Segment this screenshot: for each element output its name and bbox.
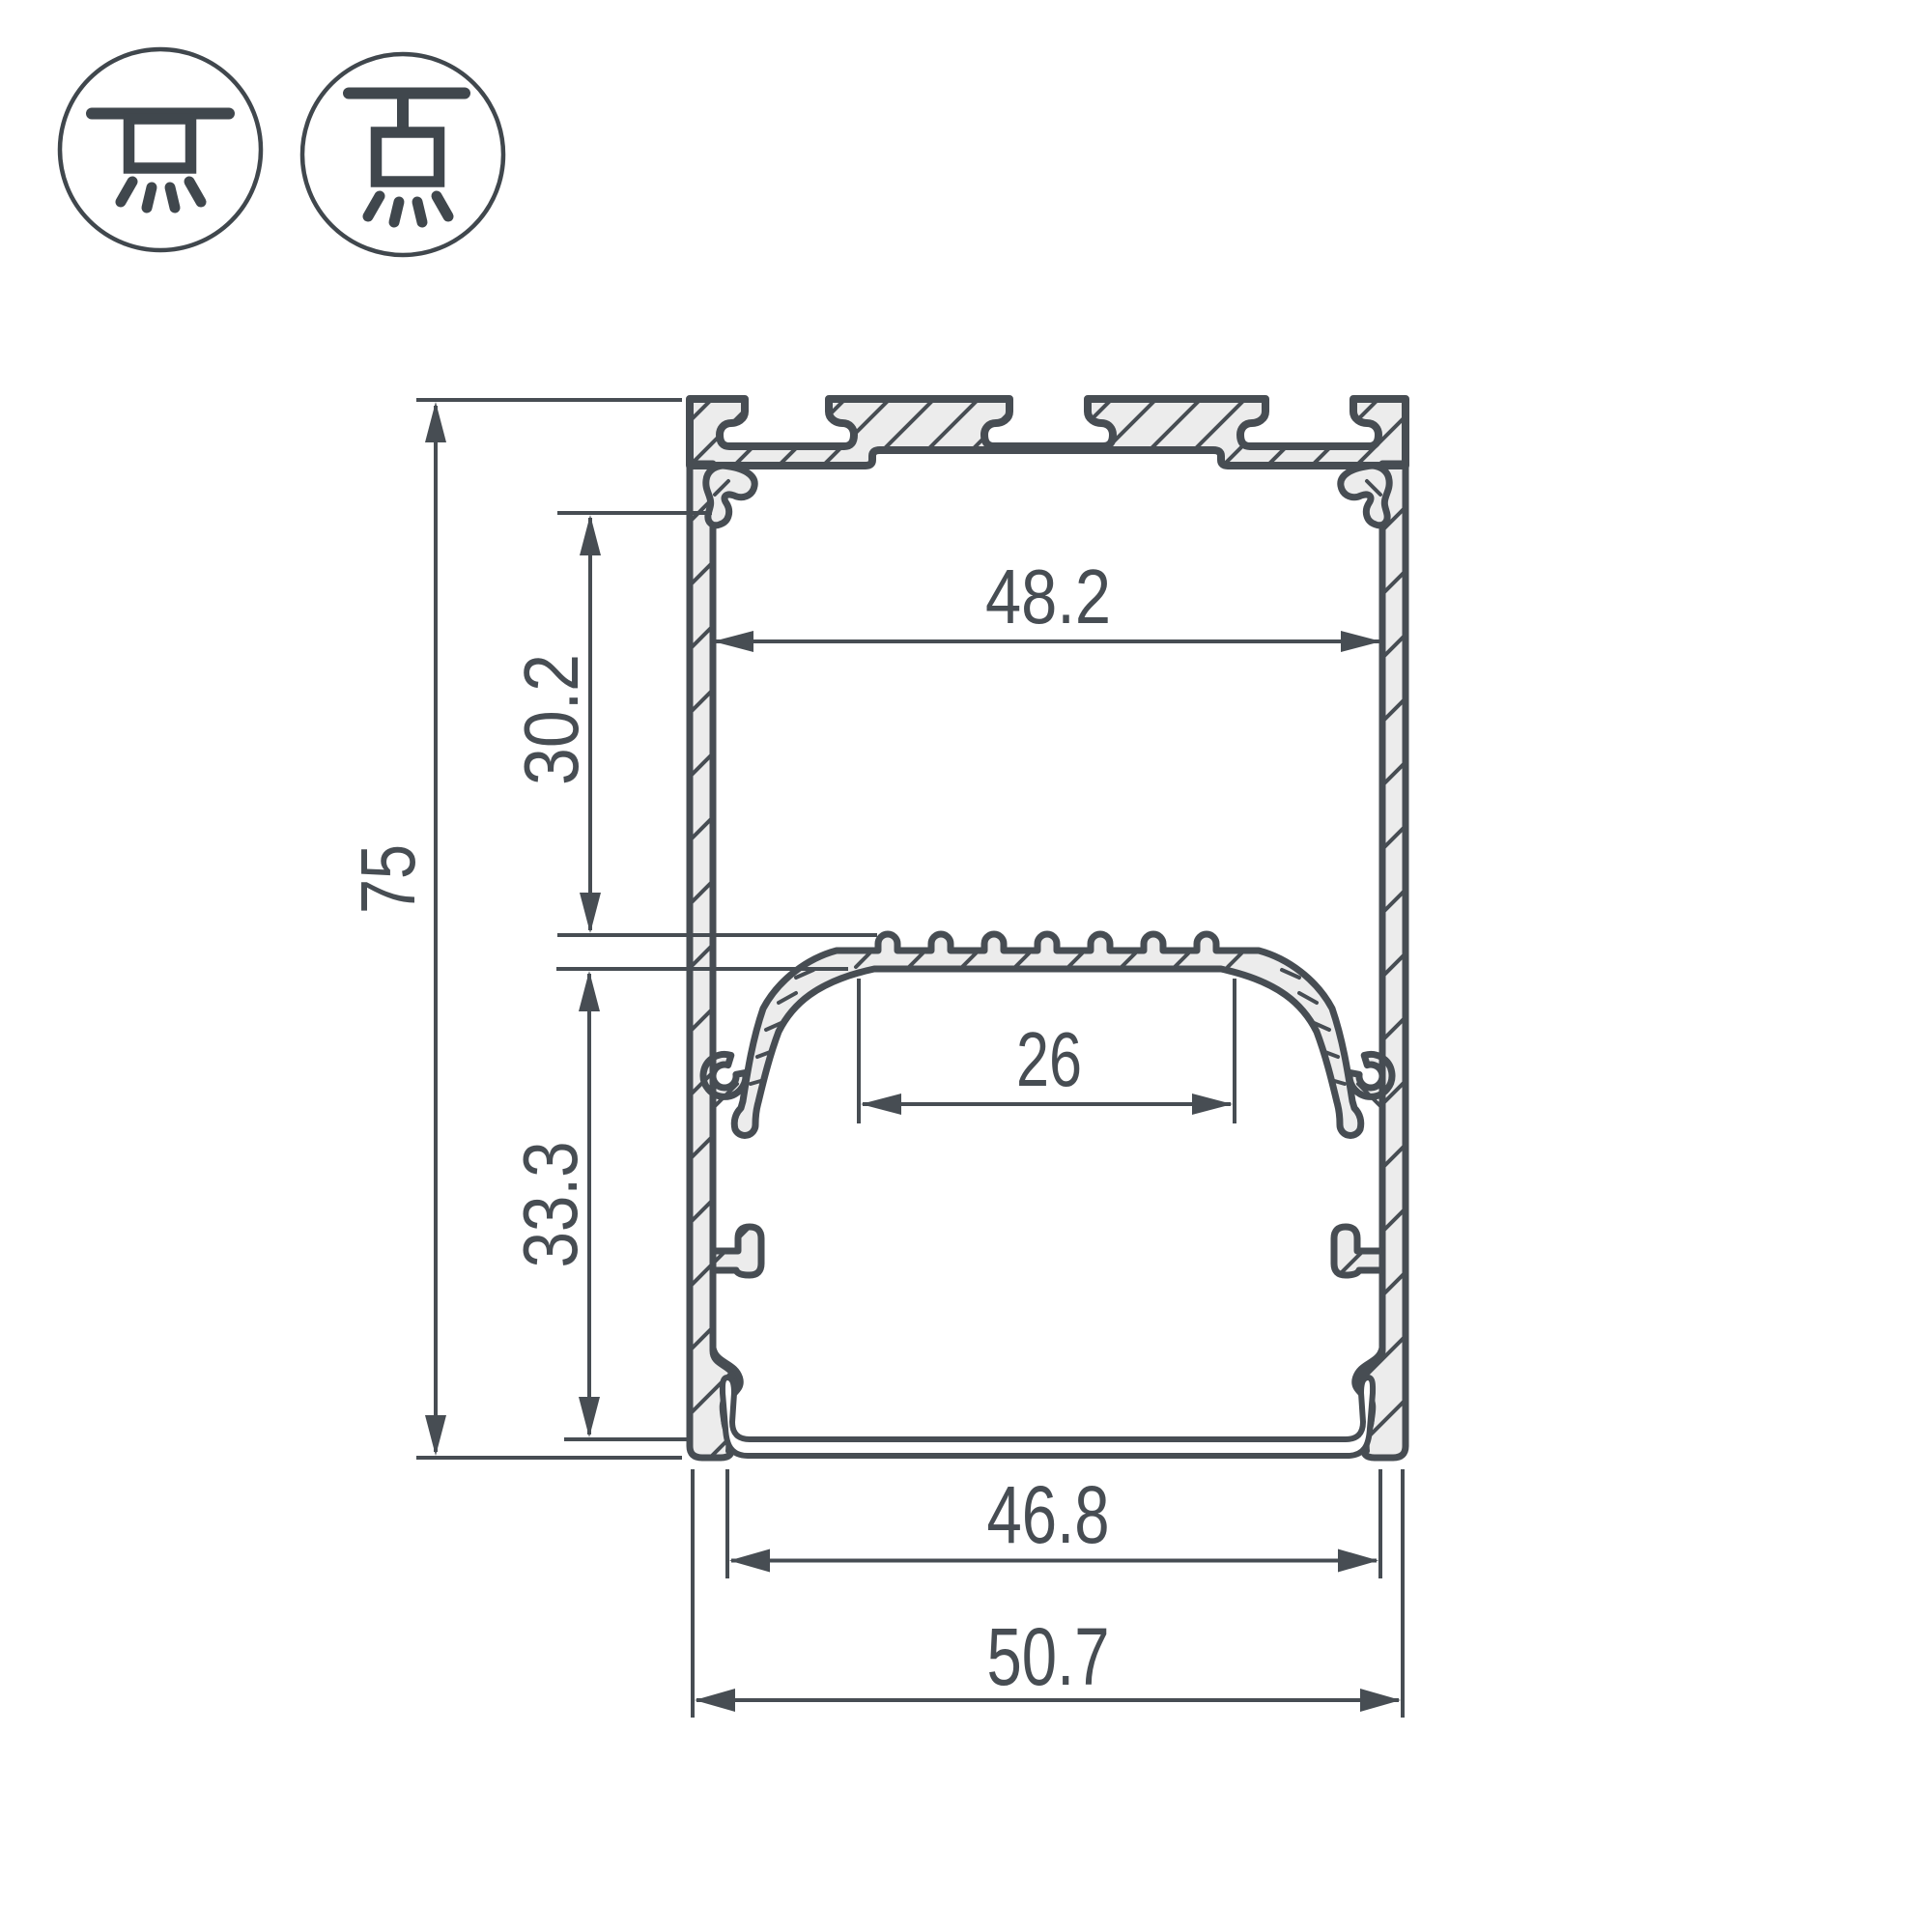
svg-text:30.2: 30.2 <box>508 654 594 785</box>
svg-text:26: 26 <box>1016 1016 1082 1102</box>
svg-text:33.3: 33.3 <box>507 1142 593 1268</box>
svg-text:46.8: 46.8 <box>987 1469 1110 1560</box>
svg-text:75: 75 <box>345 844 431 914</box>
svg-text:50.7: 50.7 <box>987 1611 1110 1702</box>
svg-text:48.2: 48.2 <box>985 554 1111 639</box>
